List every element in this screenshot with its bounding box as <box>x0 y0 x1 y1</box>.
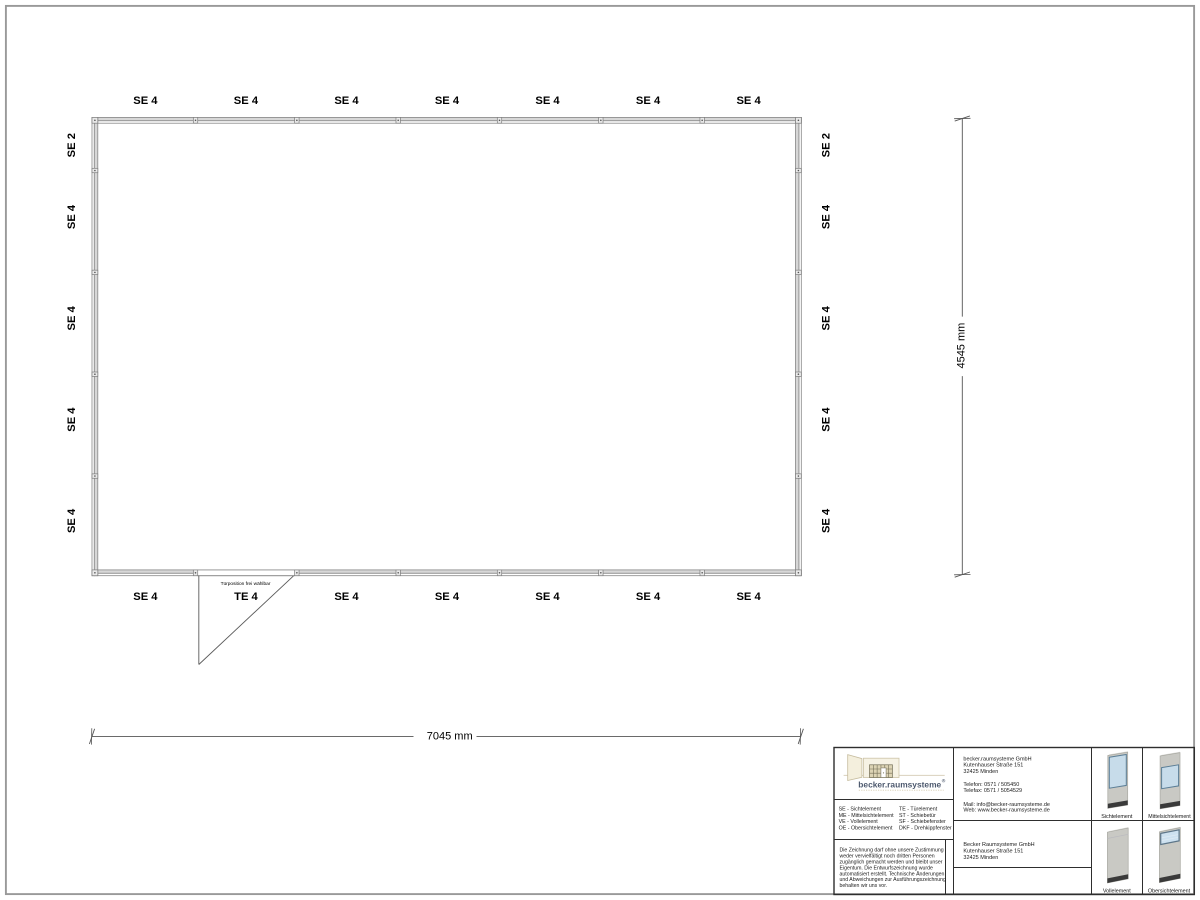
svg-text:SE 2: SE 2 <box>820 133 832 157</box>
svg-text:SE 4: SE 4 <box>636 95 661 107</box>
svg-text:Becker Raumsysteme GmbH: Becker Raumsysteme GmbH <box>963 842 1034 848</box>
svg-text:Obersichtelement: Obersichtelement <box>1148 889 1191 895</box>
svg-text:SE 4: SE 4 <box>535 591 560 603</box>
svg-text:SE 4: SE 4 <box>435 591 460 603</box>
svg-text:SE 4: SE 4 <box>66 407 78 432</box>
svg-text:7045 mm: 7045 mm <box>427 730 473 742</box>
svg-text:Türposition frei wählbar: Türposition frei wählbar <box>221 581 271 587</box>
svg-text:VE - Vollelement: VE - Vollelement <box>839 819 879 825</box>
svg-text:SE 4: SE 4 <box>820 204 832 229</box>
svg-text:SE 4: SE 4 <box>820 407 832 432</box>
svg-text:SE 4: SE 4 <box>636 591 661 603</box>
svg-text:Vollelement: Vollelement <box>1103 889 1131 895</box>
svg-text:SE 4: SE 4 <box>820 508 832 533</box>
svg-text:TE 4: TE 4 <box>234 591 258 603</box>
svg-text:32425 Minden: 32425 Minden <box>963 855 998 861</box>
svg-text:TE - Türelement: TE - Türelement <box>899 807 938 813</box>
svg-text:32425 Minden: 32425 Minden <box>963 769 998 775</box>
svg-text:SE 4: SE 4 <box>66 204 78 229</box>
svg-text:Kutenhauser Straße 151: Kutenhauser Straße 151 <box>963 849 1023 855</box>
svg-text:ME - Mittelsichtelement: ME - Mittelsichtelement <box>839 813 895 819</box>
svg-text:SE 4: SE 4 <box>435 95 460 107</box>
svg-text:OE - Obersichtelement: OE - Obersichtelement <box>839 826 893 832</box>
svg-text:Sichtelement: Sichtelement <box>1101 814 1133 820</box>
svg-text:Telefax: 0571 / 5054529: Telefax: 0571 / 5054529 <box>963 788 1022 794</box>
svg-text:behalten wir uns vor.: behalten wir uns vor. <box>840 883 888 889</box>
svg-text:SE 2: SE 2 <box>66 133 78 157</box>
svg-text:SE 4: SE 4 <box>66 305 78 330</box>
svg-text:SE 4: SE 4 <box>334 591 359 603</box>
svg-text:SF - Schiebefenster: SF - Schiebefenster <box>899 819 946 825</box>
svg-text:SE 4: SE 4 <box>736 591 761 603</box>
svg-text:®: ® <box>942 778 946 785</box>
svg-text:SE 4: SE 4 <box>736 95 761 107</box>
svg-text:SE 4: SE 4 <box>820 305 832 330</box>
svg-text:Web: www.becker-raumsysteme.de: Web: www.becker-raumsysteme.de <box>963 808 1049 814</box>
svg-text:SE 4: SE 4 <box>133 591 158 603</box>
svg-text:becker.raumsysteme: becker.raumsysteme <box>858 780 941 790</box>
svg-text:SE 4: SE 4 <box>535 95 560 107</box>
svg-text:SE 4: SE 4 <box>234 95 259 107</box>
svg-text:DKF - Drehkippfenster: DKF - Drehkippfenster <box>899 826 952 832</box>
svg-text:SE 4: SE 4 <box>66 508 78 533</box>
svg-text:Kutenhauser Straße 151: Kutenhauser Straße 151 <box>963 763 1023 769</box>
svg-text:4545 mm: 4545 mm <box>956 323 968 369</box>
svg-text:SE - Sichtelement: SE - Sichtelement <box>839 807 882 813</box>
svg-text:ST - Schiebetür: ST - Schiebetür <box>899 813 936 819</box>
svg-text:Telefon: 0571 / 505450: Telefon: 0571 / 505450 <box>963 782 1019 788</box>
svg-text:SE 4: SE 4 <box>133 95 158 107</box>
svg-text:Mittelsichtelement: Mittelsichtelement <box>1148 814 1191 820</box>
svg-text:becker.raumsysteme GmbH: becker.raumsysteme GmbH <box>963 756 1031 762</box>
svg-text:SE 4: SE 4 <box>334 95 359 107</box>
